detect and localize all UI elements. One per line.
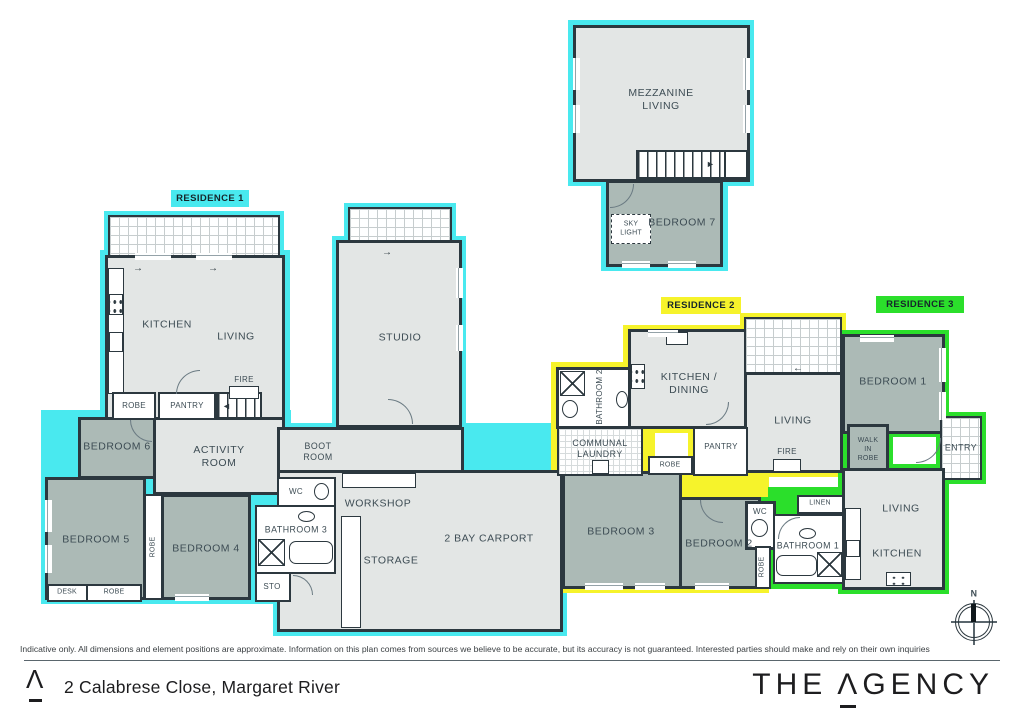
sink-icon	[846, 540, 860, 557]
residence1-tag: RESIDENCE 1	[171, 190, 249, 207]
window	[196, 253, 232, 260]
label-entry: ENTRY	[945, 443, 977, 454]
deck-studio	[348, 207, 452, 244]
stove-icon	[631, 364, 645, 389]
toilet-icon	[751, 519, 768, 537]
shower-icon	[560, 371, 585, 396]
label-bedroom5: BEDROOM 5	[62, 533, 130, 546]
label-fire2: FIRE	[777, 447, 796, 457]
stove-icon	[886, 572, 911, 586]
residence2-tag: RESIDENCE 2	[661, 297, 741, 314]
label-living1: LIVING	[217, 330, 254, 343]
label-studio: STUDIO	[379, 331, 422, 344]
label-activity: ACTIVITY ROOM	[193, 444, 244, 470]
label-robe2: ROBE	[660, 462, 681, 471]
label-living2: LIVING	[774, 414, 811, 427]
stairs-direction-arrow: ►	[706, 160, 715, 169]
compass-needle	[971, 604, 976, 622]
agency-logo-underline	[29, 699, 42, 702]
window	[860, 335, 894, 342]
window	[45, 545, 52, 573]
window	[573, 105, 580, 133]
label-sto: STO	[263, 582, 280, 592]
basin-icon	[616, 391, 628, 408]
label-carport: 2 BAY CARPORT	[444, 532, 533, 545]
window	[456, 268, 463, 298]
label-bedroom6: BEDROOM 6	[83, 440, 151, 453]
window	[175, 594, 209, 601]
label-robe5: ROBE	[104, 589, 125, 598]
label-bedroom4: BEDROOM 4	[172, 542, 240, 555]
window	[648, 330, 678, 337]
shower-icon	[817, 552, 842, 577]
label-boot-room: BOOT ROOM	[303, 441, 332, 463]
label-robe-bed2: ROBE	[759, 557, 768, 578]
window	[622, 261, 650, 268]
label-pantry1: PANTRY	[170, 401, 204, 411]
disclaimer-text: Indicative only. All dimensions and elem…	[20, 644, 1010, 654]
brand-a-underline	[840, 705, 856, 708]
label-bathroom3: BATHROOM 3	[265, 525, 328, 536]
basin-icon	[799, 528, 816, 539]
floor-plan: ► → → ◄ → ←	[0, 0, 1024, 725]
label-kitchen3: KITCHEN	[872, 547, 922, 560]
label-fire1: FIRE	[234, 375, 253, 385]
window	[45, 500, 52, 532]
stairs-direction-arrow: ◄	[222, 402, 231, 411]
brand-a-wrap: Λ	[837, 668, 862, 702]
residence3-tag: RESIDENCE 3	[876, 296, 964, 313]
window	[939, 348, 946, 382]
brand-suffix: GENCY	[862, 668, 994, 702]
kitchen1-counter	[108, 268, 124, 394]
basin-icon	[298, 511, 315, 522]
label-living3: LIVING	[882, 502, 919, 515]
sliding-door-arrow: ←	[793, 364, 803, 374]
label-workshop: WORKSHOP	[345, 497, 411, 510]
label-kitchen1: KITCHEN	[142, 318, 192, 331]
label-wc1: WC	[289, 487, 303, 497]
window	[456, 325, 463, 351]
fireplace1	[229, 386, 259, 399]
residence3-tag-label: RESIDENCE 3	[886, 299, 954, 310]
toilet-icon	[562, 400, 578, 418]
label-bathroom2: BATHROOM 2	[595, 369, 605, 424]
compass-north-label: N	[971, 589, 978, 600]
label-bathroom1: BATHROOM 1	[777, 541, 840, 552]
storage-cupboard	[341, 516, 361, 628]
sliding-door-arrow: →	[133, 264, 143, 274]
label-bedroom1: BEDROOM 1	[859, 375, 927, 388]
label-wc3: WC	[753, 507, 767, 517]
sliding-door-arrow: →	[208, 264, 218, 274]
stove-icon	[109, 294, 123, 315]
sliding-door-arrow: →	[382, 248, 392, 258]
residence1-tag-label: RESIDENCE 1	[176, 193, 244, 204]
window	[743, 105, 750, 133]
shower-icon	[258, 539, 285, 566]
toilet-icon	[314, 483, 329, 500]
label-bedroom3: BEDROOM 3	[587, 525, 655, 538]
label-pantry2: PANTRY	[704, 442, 738, 452]
bathtub-icon	[776, 555, 817, 576]
label-bedroom2: BEDROOM 2	[685, 537, 753, 550]
window	[743, 58, 750, 90]
window	[135, 253, 171, 260]
label-skylight: SKY LIGHT	[620, 220, 642, 238]
label-storage: STORAGE	[364, 554, 419, 567]
window	[695, 583, 729, 590]
workshop-cupboard	[342, 473, 416, 488]
label-bedroom7: BEDROOM 7	[648, 216, 716, 229]
label-kitchen-dining2: KITCHEN / DINING	[661, 371, 717, 397]
address-text: 2 Calabrese Close, Margaret River	[64, 677, 340, 698]
label-communal-laundry: COMMUNAL LAUNDRY	[572, 438, 627, 460]
window	[939, 392, 946, 420]
label-mezzanine-living: MEZZANINE LIVING	[628, 87, 693, 113]
agency-logo-icon: Λ	[26, 666, 43, 692]
deck-residence1	[108, 215, 280, 259]
window	[635, 583, 665, 590]
bathtub-icon	[289, 541, 333, 564]
window	[585, 583, 623, 590]
brand-prefix: THE	[752, 668, 827, 702]
fireplace2	[773, 459, 801, 472]
stairs-landing	[724, 150, 748, 179]
label-desk5: DESK	[57, 589, 77, 598]
label-robe-kitchen: ROBE	[122, 401, 146, 411]
agency-wordmark: THEΛGENCY	[752, 668, 994, 702]
window	[573, 58, 580, 90]
footer-divider	[24, 660, 1000, 661]
label-walk-in-robe: WALK IN ROBE	[858, 437, 879, 463]
label-linen: LINEN	[809, 500, 831, 509]
washer-icon	[592, 460, 609, 474]
label-robe45: ROBE	[150, 537, 159, 558]
residence2-tag-label: RESIDENCE 2	[667, 300, 735, 311]
brand-a-glyph: Λ	[837, 668, 862, 701]
window	[668, 261, 696, 268]
sink-icon	[109, 332, 123, 352]
